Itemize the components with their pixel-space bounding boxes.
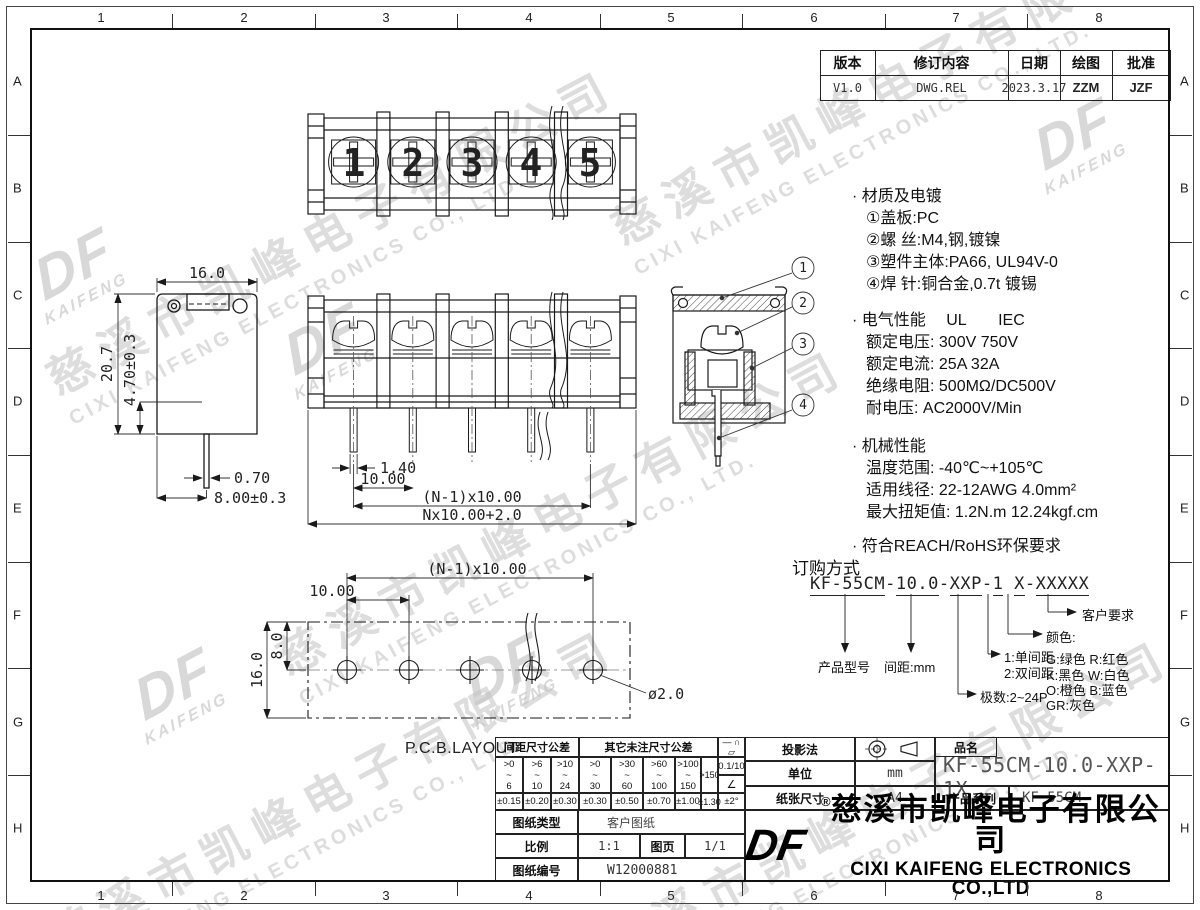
ruler-row: E xyxy=(1180,501,1189,516)
rev-content: DWG.REL xyxy=(875,75,1009,101)
ruler-col: 7 xyxy=(952,10,959,25)
material-notes: · 材质及电镀 ①盖板:PC ②螺 丝:M4,钢,镀镍 ③塑件主体:PA66, … xyxy=(852,186,1182,296)
rev-version: V1.0 xyxy=(820,75,876,101)
ruler-row: A xyxy=(1180,74,1189,89)
material-title: · 材质及电镀 xyxy=(852,186,1182,208)
other-tol: ±0.50 xyxy=(611,793,643,810)
ruler-row: D xyxy=(13,394,22,409)
code-color: X xyxy=(1014,574,1025,596)
drawing-number-value: W12000881 xyxy=(578,858,745,882)
dim-hole-diameter: ø2.0 xyxy=(648,685,684,703)
ruler-col: 6 xyxy=(810,10,817,25)
ruler-col: 3 xyxy=(382,888,389,903)
pole-number: 4 xyxy=(520,141,543,185)
pitch-tol: ±0.15 xyxy=(495,793,523,810)
rev-header: 日期 xyxy=(1008,50,1061,76)
rev-header: 批准 xyxy=(1112,50,1171,76)
rev-drafter: ZZM xyxy=(1060,75,1113,101)
ruler-col: 7 xyxy=(952,888,959,903)
dim-pin-offset: 8.00±0.3 xyxy=(214,489,286,507)
rev-header: 绘图 xyxy=(1060,50,1113,76)
balloon-screw: 2 xyxy=(799,296,807,311)
other-range: >100 ~ 150 xyxy=(675,757,701,793)
ruler-col: 1 xyxy=(97,10,104,25)
pole-number: 5 xyxy=(579,141,602,185)
ruler-row: G xyxy=(1180,715,1190,730)
other-range: >0 ~ 30 xyxy=(579,757,611,793)
unit-label: 单位 xyxy=(745,761,855,786)
code-poles: XXP xyxy=(950,574,982,596)
sheet-label: 图页 xyxy=(640,834,685,858)
electrical-line: 绝缘电阻: 500MΩ/DC500V xyxy=(852,376,1182,398)
unit-value: mm xyxy=(855,761,935,786)
pole-number: 3 xyxy=(461,141,484,185)
ruler-col: 2 xyxy=(240,10,247,25)
material-line: ①盖板:PC xyxy=(852,208,1182,230)
code-model: KF-55CM xyxy=(810,574,885,596)
mechanical-line: 适用线径: 22-12AWG 4.0mm² xyxy=(852,480,1182,502)
front-view-drawing: 1.40 10.00 (N-1)x10.00 Nx10.00+2.0 xyxy=(302,292,642,532)
ruler-col: 4 xyxy=(525,888,532,903)
ruler-col: 8 xyxy=(1095,888,1102,903)
ruler-col: 5 xyxy=(667,888,674,903)
ruler-col: 8 xyxy=(1095,10,1102,25)
ruler-col: 3 xyxy=(382,10,389,25)
pitch-range: >6 ~ 10 xyxy=(523,757,551,793)
projection-label: 投影法 xyxy=(745,737,855,761)
ordering-color-option: GR:灰色 xyxy=(1046,695,1095,714)
chamfer-tol: 0.1/10 xyxy=(718,757,745,775)
dim-pitch: 10.00 xyxy=(309,582,354,600)
electrical-line: 耐电压: AC2000V/Min xyxy=(852,398,1182,420)
material-line: ④焊 针:铜合金,0.7t 镀锡 xyxy=(852,274,1182,296)
range-over: >150 xyxy=(701,757,718,793)
dim-width: 16.0 xyxy=(189,264,225,282)
ruler-row: C xyxy=(1180,288,1189,303)
ordering-label-model: 产品型号 xyxy=(818,657,870,676)
pitch-tol: ±0.20 xyxy=(523,793,551,810)
dim-span: (N-1)x10.00 xyxy=(427,560,526,578)
other-tol: ±1.00 xyxy=(675,793,701,810)
scale-value: 1:1 xyxy=(578,834,640,858)
material-line: ②螺 丝:M4,钢,镀镍 xyxy=(852,230,1182,252)
rev-approver: JZF xyxy=(1112,75,1171,101)
top-view-drawing: 1 2 3 4 5 xyxy=(302,106,642,221)
ruler-row: E xyxy=(13,501,22,516)
dim-height: 20.7 xyxy=(98,346,116,382)
dim-height: 16.0 xyxy=(248,652,266,688)
dim-pin-width: 0.70 xyxy=(234,469,270,487)
ruler-row: D xyxy=(1180,394,1189,409)
ruler-row: B xyxy=(1180,181,1189,196)
drawing-number-label: 图纸编号 xyxy=(495,858,578,882)
ruler-col: 2 xyxy=(240,888,247,903)
electrical-line: 额定电流: 25A 32A xyxy=(852,354,1182,376)
mechanical-line: 温度范围: -40℃~+105℃ xyxy=(852,458,1182,480)
ruler-row: F xyxy=(13,608,21,623)
company-cell: DF ®慈溪市凯峰电子有限公司 CIXI KAIFENG ELECTRONICS… xyxy=(745,810,1170,882)
ruler-row: B xyxy=(13,181,22,196)
electrical-title: · 电气性能 UL IEC xyxy=(852,310,1182,332)
code-spacing: 1 xyxy=(993,574,1004,596)
ruler-row: A xyxy=(13,74,22,89)
ruler-row: H xyxy=(13,821,22,836)
company-name-cn: 慈溪市凯峰电子有限公司 xyxy=(831,792,1161,858)
kaifeng-logo: DF xyxy=(742,824,808,868)
ordering-code: KF-55CM-10.0-XXP-1 X-XXXXX xyxy=(810,574,1089,594)
ruler-row: F xyxy=(1180,608,1188,623)
pitch-range: >10 ~ 24 xyxy=(551,757,579,793)
balloon-pin: 4 xyxy=(799,398,807,413)
tol-symbols-header: — ∩ ▱ xyxy=(718,737,745,757)
ruler-col: 5 xyxy=(667,10,674,25)
ruler-col: 1 xyxy=(97,888,104,903)
dim-pitch: 10.00 xyxy=(360,470,405,488)
ruler-row: C xyxy=(13,288,22,303)
other-range: >60 ~ 100 xyxy=(643,757,675,793)
mechanical-notes: · 机械性能 温度范围: -40℃~+105℃ 适用线径: 22-12AWG 4… xyxy=(852,436,1182,524)
compliance-note: · 符合REACH/RoHS环保要求 xyxy=(852,536,1182,558)
scale-label: 比例 xyxy=(495,834,578,858)
pcb-layout-drawing: (N-1)x10.00 10.00 16.0 8.0 ø2.0 xyxy=(222,553,682,728)
rev-date: 2023.3.17 xyxy=(1008,75,1061,101)
mechanical-title: · 机械性能 xyxy=(852,436,1182,458)
pitch-range: >0 ~ 6 xyxy=(495,757,523,793)
balloon-body: 3 xyxy=(799,337,807,352)
projection-symbol-cell xyxy=(855,737,935,761)
drawing-type-label: 图纸类型 xyxy=(495,810,578,834)
company-name-en: CIXI KAIFENG ELECTRONICS CO.,LTD xyxy=(813,860,1169,898)
other-tol: ±0.30 xyxy=(579,793,611,810)
section-view-drawing: 1 2 3 4 xyxy=(658,253,843,483)
angle-symbol: ∠ xyxy=(718,775,745,793)
rev-header: 修订内容 xyxy=(875,50,1009,76)
ordering-label-customer: 客户要求 xyxy=(1082,605,1134,624)
dim-total: Nx10.00+2.0 xyxy=(422,506,521,524)
mechanical-line: 最大扭矩值: 1.2N.m 12.24kgf.cm xyxy=(852,502,1182,524)
other-range: >30 ~ 60 xyxy=(611,757,643,793)
other-tol-header: 其它未注尺寸公差 xyxy=(579,737,718,757)
electrical-line: 额定电压: 300V 750V xyxy=(852,332,1182,354)
title-block: 间距尺寸公差 其它未注尺寸公差 — ∩ ▱ >0 ~ 6 >6 ~ 10 >10… xyxy=(495,737,1170,882)
ruler-row: G xyxy=(13,715,23,730)
dim-span: (N-1)x10.00 xyxy=(422,488,521,506)
dim-pin-length: 4.70±0.3 xyxy=(121,334,139,406)
balloon-cover: 1 xyxy=(799,261,807,276)
revision-table: 版本 修订内容 日期 绘图 批准 V1.0 DWG.REL 2023.3.17 … xyxy=(820,50,1170,100)
sheet-value: 1/1 xyxy=(685,834,745,858)
code-custom: XXXXX xyxy=(1036,574,1090,596)
rev-header: 版本 xyxy=(820,50,876,76)
code-pitch: 10.0 xyxy=(896,574,939,596)
ruler-col: 6 xyxy=(810,888,817,903)
drawing-sheet: 慈溪市凯峰电子有限公司 CIXI KAIFENG ELECTRONICS CO.… xyxy=(0,0,1200,910)
over-tol: ±1.30 xyxy=(701,793,718,810)
electrical-notes: · 电气性能 UL IEC 额定电压: 300V 750V 额定电流: 25A … xyxy=(852,310,1182,420)
ruler-row: H xyxy=(1180,821,1189,836)
registered-mark: ® xyxy=(821,794,831,809)
pitch-tol-header: 间距尺寸公差 xyxy=(495,737,579,757)
other-tol: ±0.70 xyxy=(643,793,675,810)
drawing-type-value: 客户图纸 xyxy=(578,810,745,834)
pitch-tol: ±0.30 xyxy=(551,793,579,810)
ordering-label-poles: 极数:2~24P xyxy=(980,687,1048,706)
side-view-drawing: 16.0 20.7 4.70±0.3 0.70 8.00±0.3 xyxy=(88,258,298,508)
angle-tol: ±2° xyxy=(718,793,745,810)
ordering-label-pitch: 间距:mm xyxy=(884,657,935,676)
ruler-col: 4 xyxy=(525,10,532,25)
pole-number: 1 xyxy=(343,141,366,185)
material-line: ③塑件主体:PA66, UL94V-0 xyxy=(852,252,1182,274)
pole-number: 2 xyxy=(402,141,425,185)
first-angle-projection-icon xyxy=(863,738,927,760)
ordering-label-color: 颜色: xyxy=(1046,627,1076,646)
dim-row: 8.0 xyxy=(268,632,286,659)
